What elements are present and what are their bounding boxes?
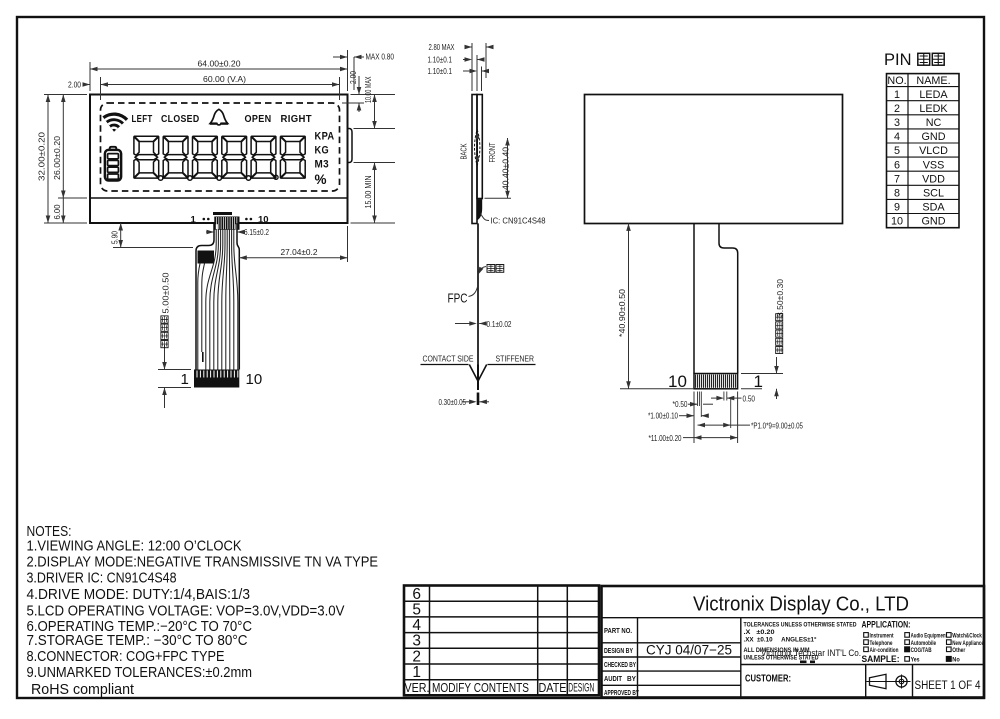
svg-text:Yes: Yes [911, 657, 920, 664]
svg-text:2: 2 [894, 103, 900, 115]
svg-text:.X ±0.20: .X ±0.20 [744, 629, 776, 636]
svg-text:Watch&Clock: Watch&Clock [952, 633, 982, 640]
svg-text:10.00 MAX: 10.00 MAX [363, 76, 373, 103]
svg-text:1.VIEWING ANGLE: 12:00 O’CLOCK: 1.VIEWING ANGLE: 12:00 O’CLOCK [27, 539, 242, 555]
svg-text:IC: CN91C4S48: IC: CN91C4S48 [491, 216, 546, 226]
svg-text:5.LCD OPERATING VOLTAGE: VOP=3: 5.LCD OPERATING VOLTAGE: VOP=3.0V,VDD=3.… [27, 604, 345, 620]
svg-text:6: 6 [894, 159, 900, 171]
svg-text:2.DISPLAY MODE:NEGATIVE TRANSM: 2.DISPLAY MODE:NEGATIVE TRANSMISSIVE TN … [27, 555, 379, 571]
svg-text:40.40±0.40: 40.40±0.40 [500, 147, 510, 190]
svg-text:RoHS compliant: RoHS compliant [31, 682, 134, 698]
svg-text:LEDK: LEDK [919, 103, 948, 115]
svg-text:TOLERANCES UNLESS OTHERWISE ST: TOLERANCES UNLESS OTHERWISE STATED [744, 622, 857, 629]
svg-text:Instrument: Instrument [870, 633, 895, 640]
svg-text:2.00: 2.00 [68, 80, 81, 90]
svg-text:NO.: NO. [887, 75, 906, 87]
svg-text:Victronix Tecnstar INT'L Co.: Victronix Tecnstar INT'L Co. [761, 648, 861, 658]
svg-text:4: 4 [412, 617, 421, 634]
svg-text:3.50±0.30: 3.50±0.30 [775, 279, 785, 317]
svg-text:0.30±0.05: 0.30±0.05 [439, 397, 467, 407]
svg-text:No: No [952, 657, 960, 664]
svg-text:SCL: SCL [923, 188, 944, 200]
svg-text:32.00±0.20: 32.00±0.20 [37, 132, 47, 181]
svg-text:1: 1 [191, 215, 197, 226]
svg-text:8: 8 [894, 188, 900, 200]
svg-text:Audio Equipment: Audio Equipment [911, 633, 948, 640]
svg-text:0.1±0.02: 0.1±0.02 [487, 319, 512, 329]
svg-text:Victronix Display Co., LTD: Victronix Display Co., LTD [693, 593, 909, 616]
svg-text:7.STORAGE TEMP.: −30°C TO 80°C: 7.STORAGE TEMP.: −30°C TO 80°C [27, 633, 248, 649]
svg-text:3: 3 [412, 633, 421, 650]
svg-text:VDD: VDD [922, 173, 945, 185]
svg-text:10: 10 [891, 216, 903, 228]
svg-text:VER.: VER. [405, 680, 430, 695]
svg-text:64.00±0.20: 64.00±0.20 [198, 59, 241, 69]
svg-text:APPROVED BY: APPROVED BY [604, 690, 639, 697]
svg-text:1: 1 [412, 664, 421, 681]
svg-text:*P1.0*9=9.00±0.05: *P1.0*9=9.00±0.05 [751, 421, 803, 431]
svg-text:FPC: FPC [448, 291, 468, 306]
svg-text:1.10±0.1: 1.10±0.1 [428, 55, 453, 65]
svg-text:CLOSED: CLOSED [161, 113, 200, 125]
svg-text:STIFFENER: STIFFENER [496, 354, 535, 364]
svg-text:Other: Other [952, 647, 965, 654]
svg-text:27.04±0.2: 27.04±0.2 [281, 247, 318, 257]
svg-text:M3: M3 [315, 159, 330, 171]
svg-text:CUSTOMER:: CUSTOMER: [745, 674, 791, 685]
svg-text:NC: NC [926, 117, 942, 129]
svg-text:2.00: 2.00 [348, 71, 358, 84]
svg-text:FRONT: FRONT [487, 143, 497, 163]
svg-text:DESIGN: DESIGN [568, 682, 594, 695]
svg-text:VSS: VSS [923, 159, 945, 171]
svg-text:SAMPLE:: SAMPLE: [862, 653, 900, 664]
svg-text:60.00 (V.A): 60.00 (V.A) [203, 74, 246, 84]
svg-text:APPLICATION:: APPLICATION: [862, 619, 911, 630]
svg-text:9: 9 [894, 202, 900, 214]
svg-text:3: 3 [894, 117, 900, 129]
svg-text:VLCD: VLCD [919, 145, 948, 157]
svg-text:5: 5 [412, 601, 421, 618]
svg-text:GND: GND [922, 131, 946, 143]
svg-text:4: 4 [894, 131, 900, 143]
svg-text:*0.50: *0.50 [673, 399, 688, 409]
svg-text:9.UNMARKED TOLERANCES:±0.2mm: 9.UNMARKED TOLERANCES:±0.2mm [27, 665, 253, 681]
svg-text:*11.00±0.20: *11.00±0.20 [649, 433, 682, 443]
svg-text:COG/TAB: COG/TAB [911, 647, 932, 654]
svg-text:PART NO.: PART NO. [604, 628, 632, 635]
svg-text:MAX 0.80: MAX 0.80 [366, 52, 395, 62]
svg-text:DESIGN BY: DESIGN BY [604, 648, 633, 655]
svg-text:Telephone: Telephone [870, 640, 893, 647]
svg-text:1.10±0.1: 1.10±0.1 [428, 66, 453, 76]
svg-text:2.80 MAX: 2.80 MAX [429, 42, 455, 52]
svg-text:RIGHT: RIGHT [281, 113, 313, 125]
svg-text:5.00±0.50: 5.00±0.50 [160, 272, 170, 313]
svg-text:*40.90±0.50: *40.90±0.50 [617, 289, 627, 337]
svg-text:6.00: 6.00 [52, 204, 62, 219]
svg-text:7: 7 [894, 173, 900, 185]
svg-text:SDA: SDA [922, 202, 945, 214]
svg-text:1: 1 [754, 372, 763, 391]
svg-text:New Appliance: New Appliance [952, 640, 984, 647]
svg-text:*1.00±0.10: *1.00±0.10 [648, 411, 678, 421]
svg-text:KPA: KPA [315, 131, 335, 143]
svg-text:10: 10 [258, 215, 269, 226]
svg-text:10: 10 [668, 372, 687, 391]
svg-text:BY: BY [627, 676, 636, 683]
svg-text:SHEET 1 OF 4: SHEET 1 OF 4 [915, 678, 981, 692]
svg-text:KG: KG [315, 145, 330, 157]
svg-text:5: 5 [894, 145, 900, 157]
svg-text:0.50: 0.50 [743, 394, 756, 404]
svg-text:CHECKED BY: CHECKED BY [604, 662, 636, 669]
svg-text:AUDIT: AUDIT [604, 676, 623, 683]
svg-text:DATE: DATE [539, 680, 567, 695]
svg-text:4.DRIVE MODE: DUTY:1/4,BAIS:1/: 4.DRIVE MODE: DUTY:1/4,BAIS:1/3 [27, 587, 251, 603]
svg-text:2: 2 [412, 648, 421, 665]
svg-text:.XX ±0.10 ANGLES±1°: .XX ±0.10 ANGLES±1° [744, 636, 817, 644]
svg-text:10: 10 [246, 371, 263, 388]
svg-text:1: 1 [894, 89, 900, 101]
svg-text:3.DRIVER IC: CN91C4S48: 3.DRIVER IC: CN91C4S48 [27, 571, 177, 587]
svg-text:CYJ 04/07−25: CYJ 04/07−25 [646, 643, 732, 658]
svg-text:6.15±0.2: 6.15±0.2 [244, 227, 269, 237]
svg-text:CONTACT SIDE: CONTACT SIDE [423, 354, 474, 364]
svg-text:5.90: 5.90 [110, 231, 120, 244]
svg-text:%: % [315, 172, 327, 187]
svg-text:OPEN: OPEN [245, 113, 272, 125]
svg-text:26.00±0.20: 26.00±0.20 [52, 136, 62, 180]
svg-text:GND: GND [922, 216, 946, 228]
svg-text:15.00 MIN: 15.00 MIN [363, 176, 373, 209]
svg-text:BACK: BACK [458, 143, 468, 159]
svg-text:LEFT: LEFT [132, 113, 153, 125]
svg-text:PIN: PIN [884, 51, 912, 69]
svg-text:MODIFY CONTENTS: MODIFY CONTENTS [432, 680, 529, 695]
svg-text:Automobile: Automobile [911, 640, 937, 647]
svg-text:8.CONNECTOR: COG+FPC TYPE: 8.CONNECTOR: COG+FPC TYPE [27, 649, 225, 665]
svg-text:NAME.: NAME. [916, 75, 950, 87]
svg-text:1: 1 [181, 371, 189, 388]
svg-text:LEDA: LEDA [919, 89, 948, 101]
